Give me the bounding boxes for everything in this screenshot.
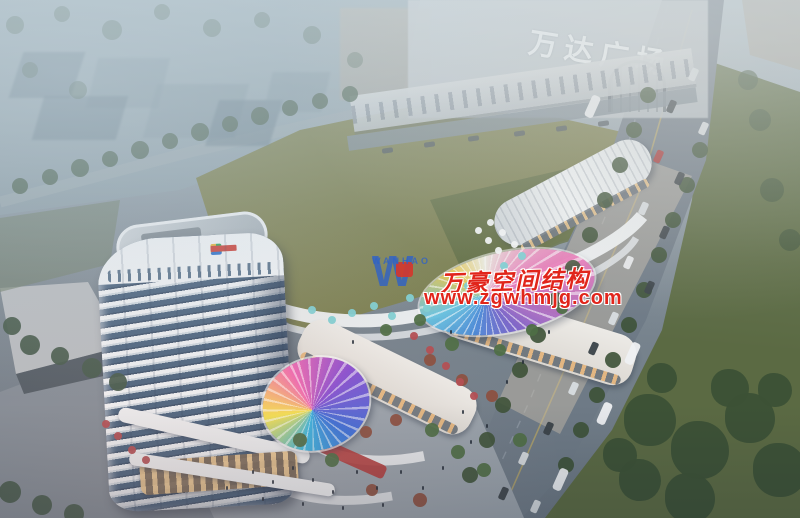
tree-icon [512,362,528,378]
person-dot [506,380,508,384]
tree-canopy-icon [711,369,749,407]
tree-icon [12,178,28,194]
tree-icon [626,122,642,138]
person-dot [292,466,294,470]
tree-icon [738,70,758,90]
watermark-url-text: www.zgwhmjg.com [424,287,623,310]
tree-icon [282,100,298,116]
tree-icon [779,229,800,251]
bus-icon [584,94,602,119]
tree-icon [0,481,21,503]
umbrella-icon [128,446,136,454]
umbrella-icon [499,229,506,236]
car-icon [514,130,526,136]
person-dot [376,486,378,490]
tree-icon [605,352,621,368]
umbrella-icon [456,378,464,386]
tree-icon [621,317,637,333]
person-dot [252,470,254,474]
tree-icon [573,422,589,438]
umbrella-icon [348,309,356,317]
tree-icon [303,26,321,44]
car-icon [638,201,650,216]
tree-icon [154,4,170,20]
bus-icon [624,341,642,366]
umbrella-icon [485,237,492,244]
aerial-rendering: 万达广场 W WANHAO 万豪空间结构 www.zgwhmjg.com [0,0,800,518]
person-dot [522,360,524,364]
person-dot [470,440,472,444]
tree-icon [526,324,538,336]
person-dot [312,478,314,482]
umbrella-icon [308,306,316,314]
autumn-tree-icon [390,414,402,426]
car-icon [666,99,678,114]
tree-icon [749,109,771,131]
tree-icon [692,142,708,158]
tree-icon [293,433,307,447]
tree-icon [347,52,363,68]
car-icon [518,451,530,466]
umbrella-icon [410,332,418,340]
car-icon [598,120,610,126]
tree-icon [42,169,58,185]
tree-icon [589,387,605,403]
tree-icon [69,81,87,99]
bus-icon [552,467,570,492]
person-dot [262,497,264,501]
tree-icon [312,93,328,109]
umbrella-icon [511,241,518,248]
tree-canopy-icon [647,363,677,393]
autumn-tree-icon [486,390,498,402]
bus-icon [596,401,614,426]
tree-icon [462,467,478,483]
tree-icon [109,373,127,391]
tree-icon [651,247,667,263]
car-icon [556,125,568,131]
tree-icon [380,324,392,336]
umbrella-icon [102,420,110,428]
tree-icon [203,19,221,37]
tree-icon [20,335,40,355]
person-dot [450,330,452,334]
person-dot [352,340,354,344]
tree-icon [6,16,24,34]
person-dot [332,490,334,494]
tree-icon [131,141,149,159]
tree-canopy-icon [624,394,676,446]
tree-icon [495,397,511,413]
tree-icon [425,423,439,437]
tree-icon [32,495,52,515]
tree-icon [191,123,209,141]
tree-icon [477,463,491,477]
tree-icon [54,6,70,22]
tree-icon [414,314,426,326]
tree-icon [71,159,89,177]
person-dot [272,480,274,484]
person-dot [442,466,444,470]
tree-icon [251,107,269,125]
tree-canopy-icon [603,438,637,472]
car-icon [588,341,600,356]
tree-icon [582,227,598,243]
tree-icon [51,347,69,365]
person-dot [548,330,550,334]
tree-icon [3,317,21,335]
person-dot [400,470,402,474]
person-dot [486,424,488,428]
tree-canopy-icon [758,373,792,407]
umbrella-icon [114,432,122,440]
tree-icon [612,157,628,173]
tree-icon [665,212,681,228]
tree-icon [445,337,459,351]
tree-icon [325,453,339,467]
car-icon [382,147,394,153]
tree-icon [254,12,270,28]
umbrella-icon [518,252,526,260]
car-icon [424,141,436,147]
tree-icon [760,178,784,202]
person-dot [356,470,358,474]
tree-icon [22,62,38,78]
person-dot [302,502,304,506]
car-icon [653,149,665,164]
person-dot [382,503,384,507]
car-icon [623,255,635,270]
person-dot [462,410,464,414]
tree-icon [82,358,102,378]
umbrella-icon [442,362,450,370]
tree-icon [597,192,613,208]
umbrella-icon [388,312,396,320]
tree-icon [102,151,118,167]
car-icon [498,486,510,501]
car-icon [698,121,710,136]
tree-icon [64,504,84,518]
person-dot [342,506,344,510]
umbrella-icon [495,247,502,254]
car-icon [688,67,700,82]
umbrella-icon [470,392,478,400]
tree-icon [342,86,358,102]
car-icon [608,311,620,326]
car-icon [568,381,580,396]
tree-icon [451,445,465,459]
tree-icon [479,432,495,448]
car-icon [543,421,555,436]
tree-canopy-icon [671,421,729,479]
tree-icon [162,133,178,149]
umbrella-icon [487,219,494,226]
tree-canopy-icon [665,473,715,518]
person-dot [226,486,228,490]
autumn-tree-icon [413,493,427,507]
person-dot [422,486,424,490]
autumn-tree-icon [360,426,372,438]
umbrella-icon [475,227,482,234]
tree-icon [222,116,238,132]
car-icon [659,225,671,240]
car-icon [468,135,480,141]
tree-icon [494,344,506,356]
tree-icon [640,87,656,103]
umbrella-icon [426,346,434,354]
umbrella-icon [328,316,336,324]
tree-canopy-icon [753,443,800,497]
tree-icon [102,20,122,40]
car-icon [530,499,542,514]
umbrella-icon [142,456,150,464]
autumn-tree-icon [424,354,436,366]
tree-icon [513,433,527,447]
watermark-logo-name: WANHAO [372,256,431,266]
